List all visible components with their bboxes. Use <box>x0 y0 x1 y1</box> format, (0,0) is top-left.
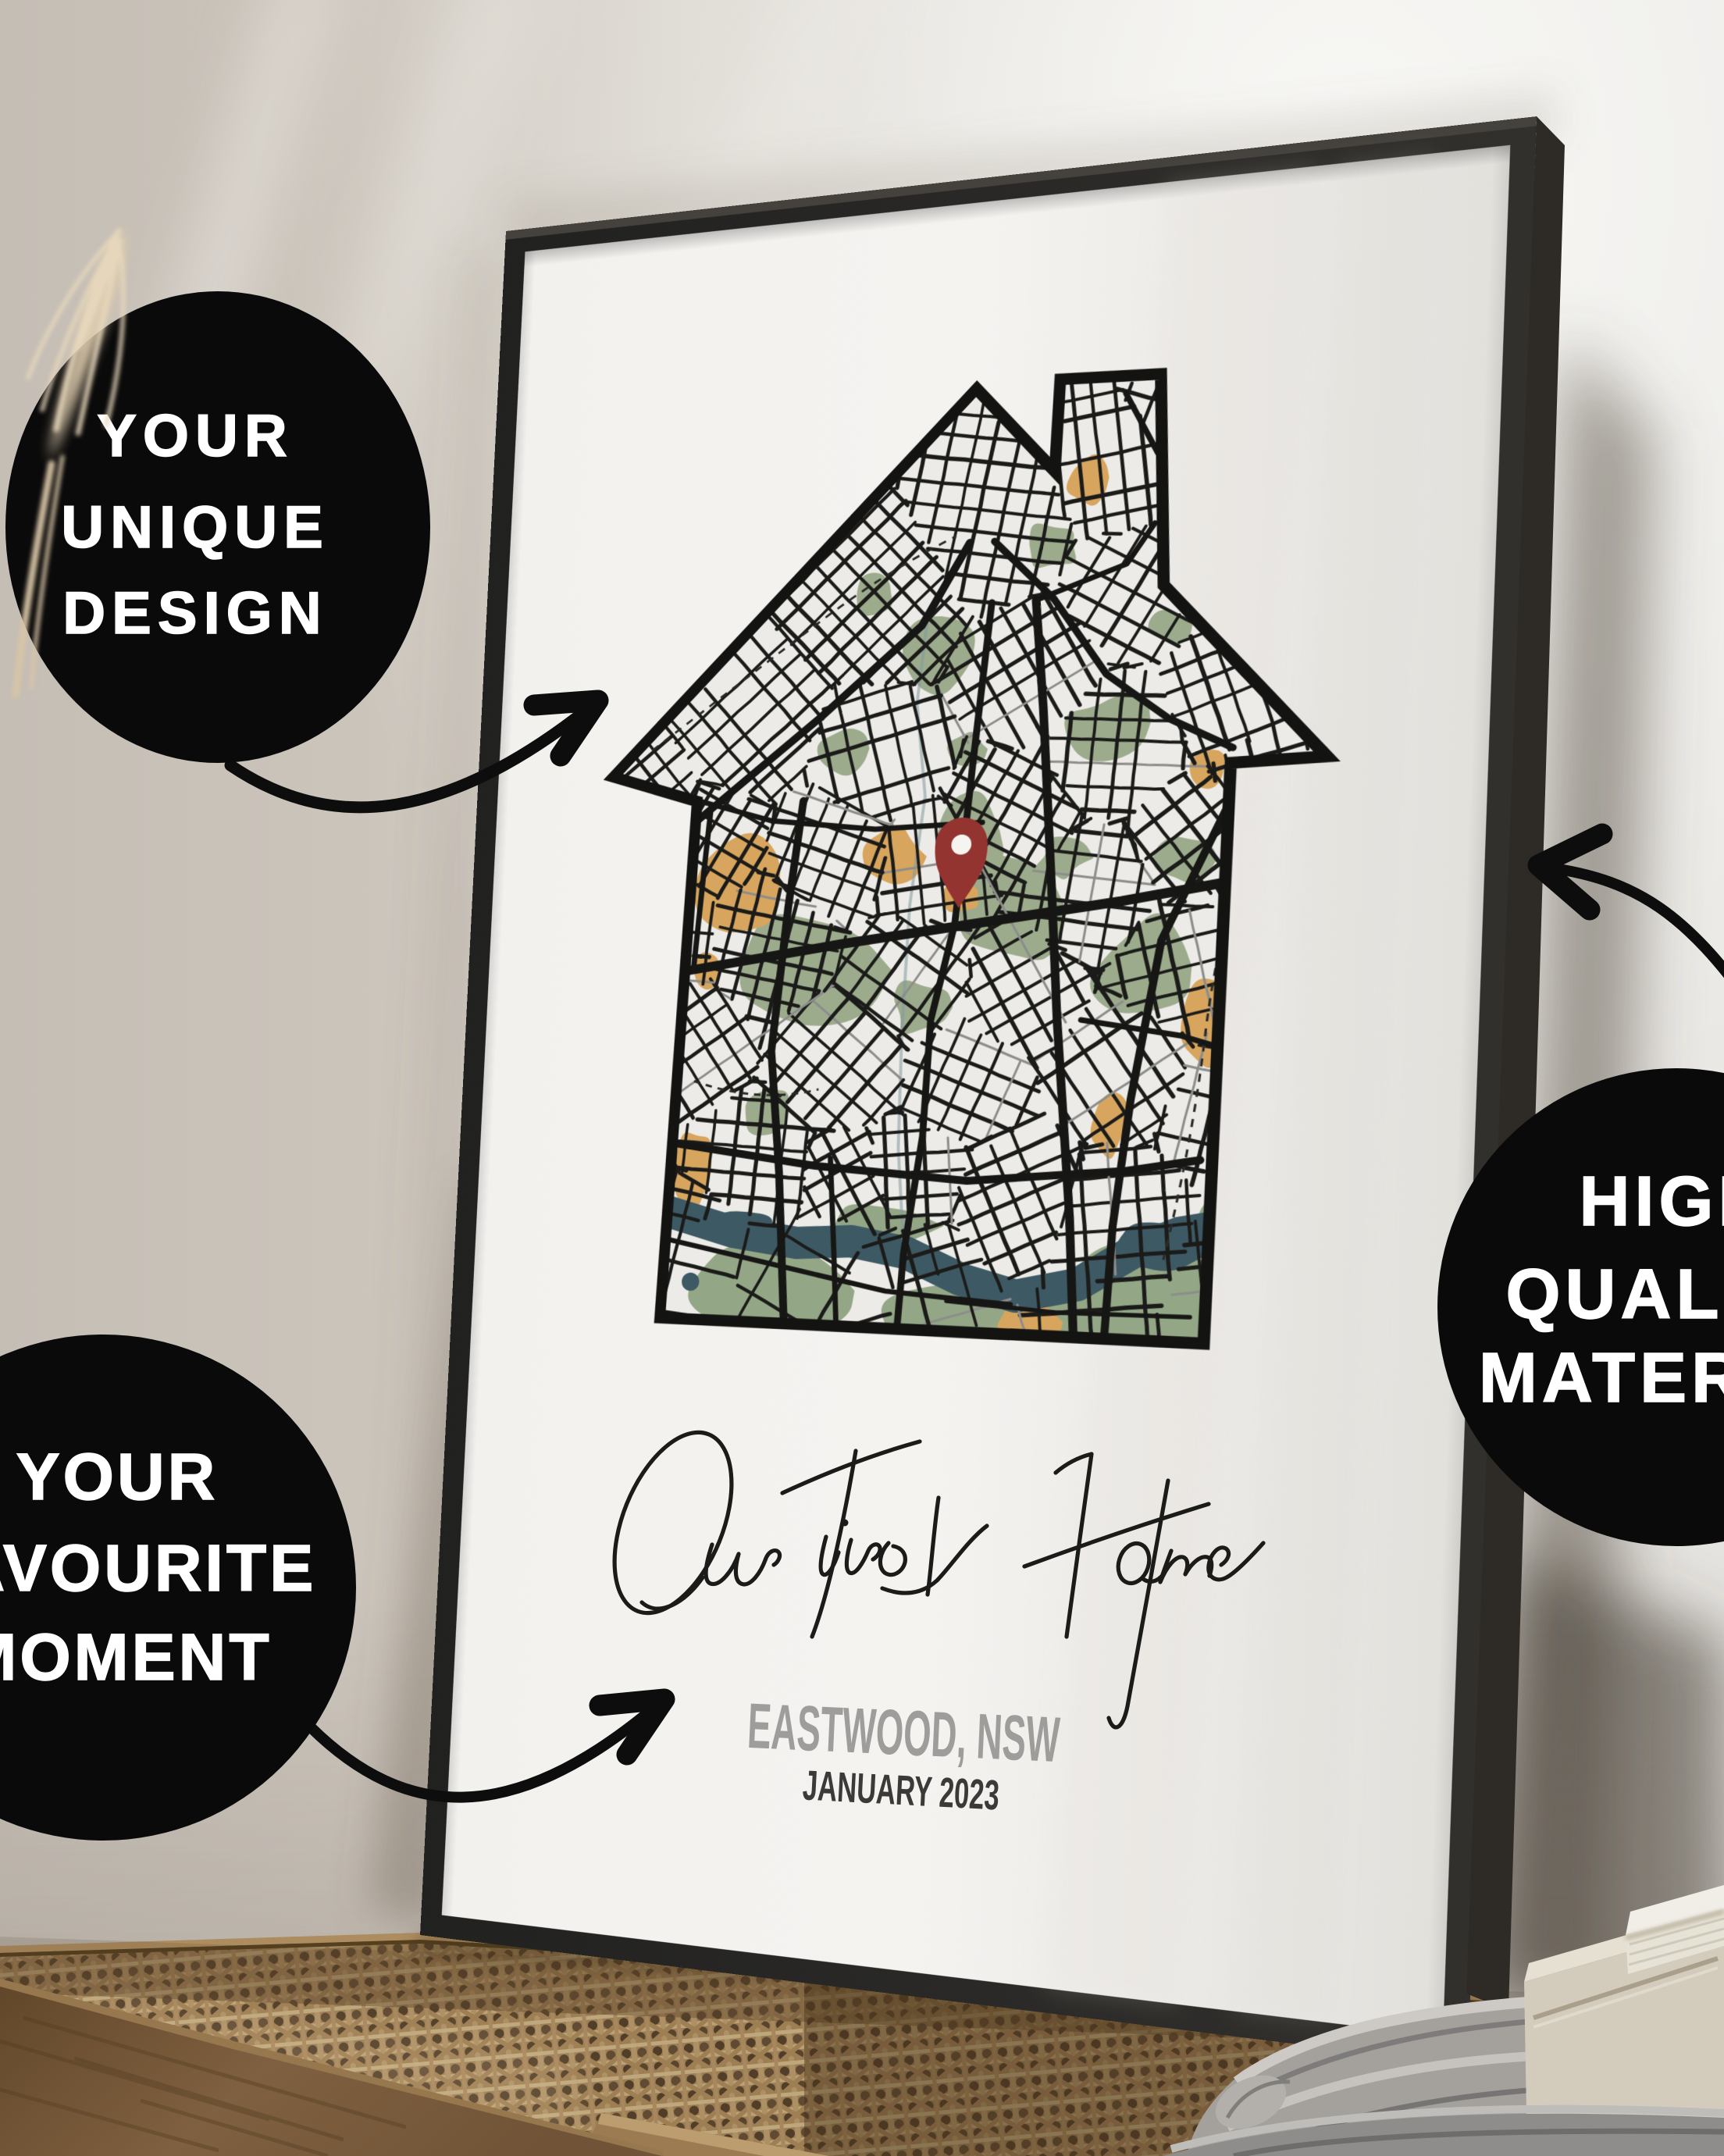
svg-text:HIGH: HIGH <box>1580 1163 1724 1241</box>
svg-text:UNIQUE: UNIQUE <box>61 494 329 561</box>
svg-text:EASTWOOD, NSW: EASTWOOD, NSW <box>746 1691 1061 1776</box>
svg-text:QUALITY: QUALITY <box>1506 1256 1724 1334</box>
svg-text:YOUR: YOUR <box>97 403 294 469</box>
svg-text:FAVOURITE: FAVOURITE <box>0 1531 316 1605</box>
svg-text:YOUR: YOUR <box>16 1440 219 1513</box>
svg-text:MATERIAL: MATERIAL <box>1479 1339 1724 1417</box>
svg-text:JANUARY 2023: JANUARY 2023 <box>802 1762 1001 1819</box>
svg-text:DESIGN: DESIGN <box>62 580 327 647</box>
svg-text:MOMENT: MOMENT <box>0 1620 272 1694</box>
